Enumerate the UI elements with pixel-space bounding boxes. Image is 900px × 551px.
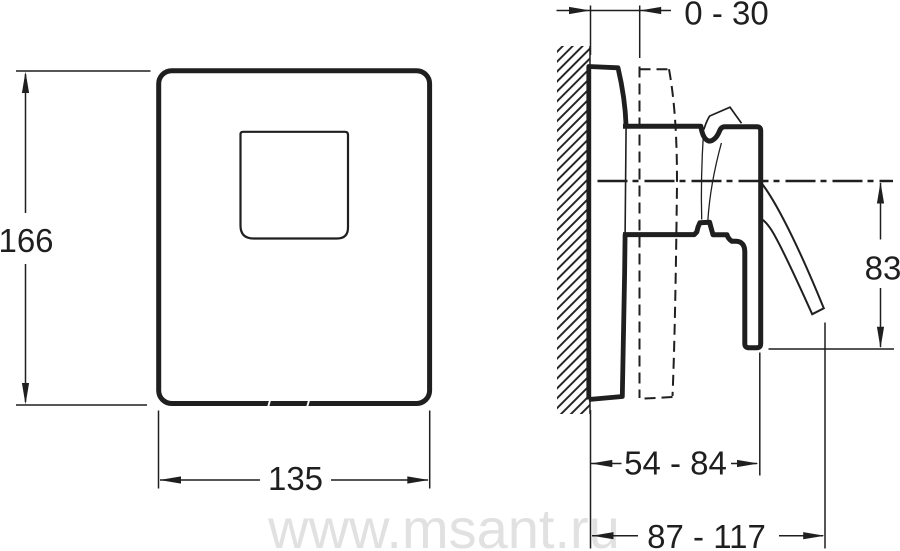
svg-text:166: 166 [0,222,54,259]
svg-text:87 - 117: 87 - 117 [647,518,766,551]
svg-text:135: 135 [268,460,323,497]
svg-text:www.msant.ru: www.msant.ru [267,497,620,551]
svg-text:54 - 84: 54 - 84 [624,445,727,482]
svg-text:83: 83 [865,250,900,287]
svg-text:0 - 30: 0 - 30 [684,0,768,32]
